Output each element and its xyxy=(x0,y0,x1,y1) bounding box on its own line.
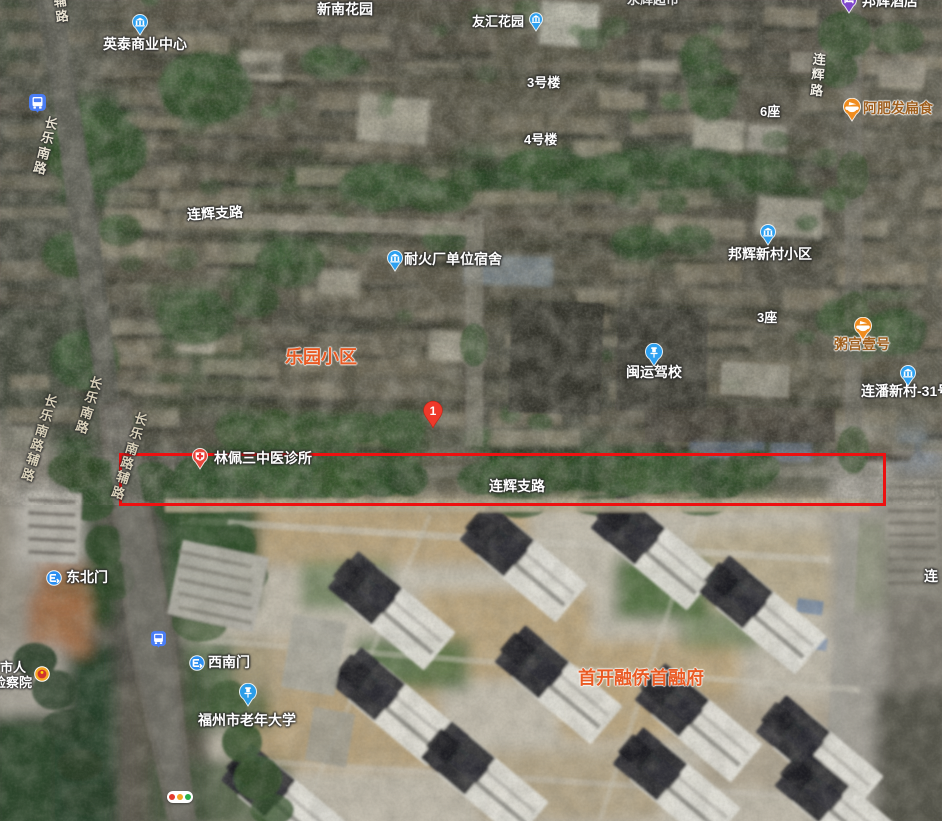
svg-text:1: 1 xyxy=(430,404,437,418)
